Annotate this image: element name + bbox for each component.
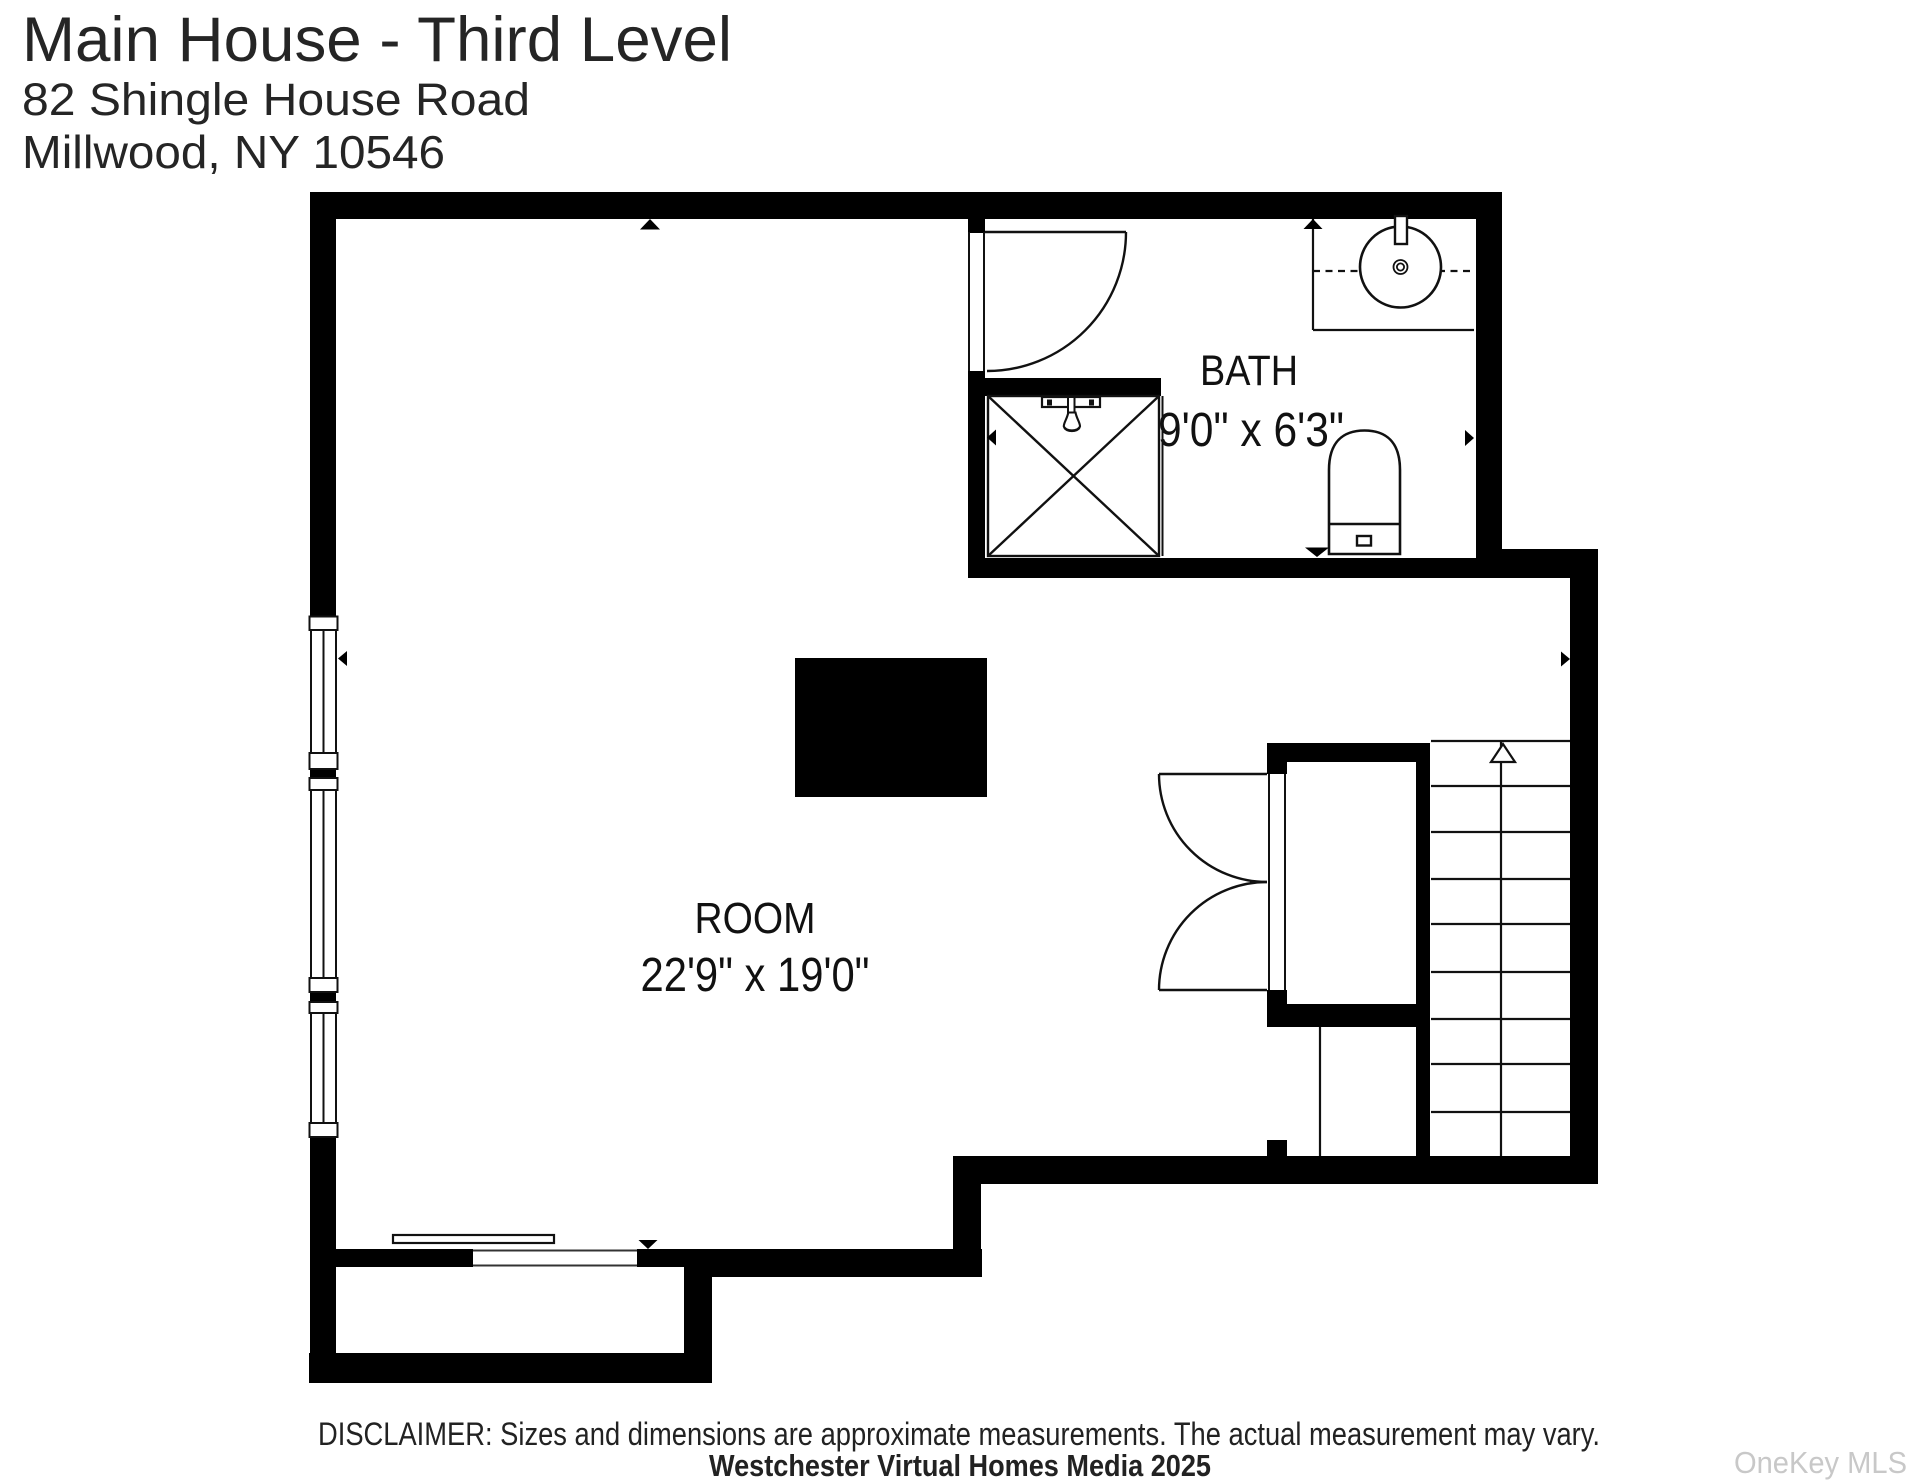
svg-text:Main House - Third Level: Main House - Third Level (22, 5, 732, 75)
svg-text:82 Shingle House Road: 82 Shingle House Road (22, 74, 530, 125)
svg-text:Millwood, NY 10546: Millwood, NY 10546 (22, 126, 445, 178)
svg-text:BATH: BATH (1200, 347, 1298, 395)
svg-text:Westchester Virtual Homes Medi: Westchester Virtual Homes Media 2025 (709, 1448, 1211, 1483)
svg-text:9'0" x 6'3": 9'0" x 6'3" (1158, 404, 1344, 457)
svg-text:ROOM: ROOM (695, 894, 816, 943)
svg-text:DISCLAIMER: Sizes and dimensio: DISCLAIMER: Sizes and dimensions are app… (318, 1416, 1600, 1452)
svg-text:OneKey MLS: OneKey MLS (1734, 1445, 1907, 1480)
svg-text:22'9" x 19'0": 22'9" x 19'0" (641, 949, 870, 1002)
